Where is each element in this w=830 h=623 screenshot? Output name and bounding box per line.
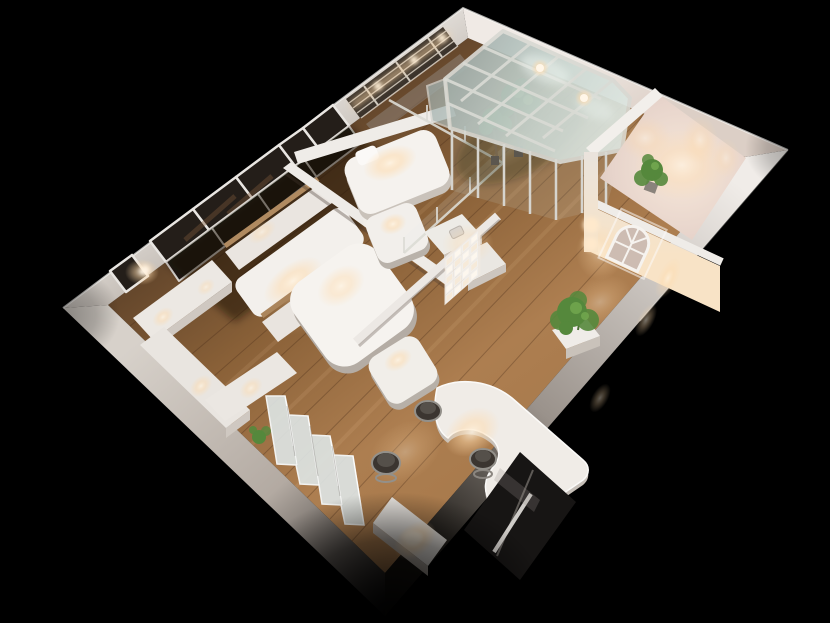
render-canvas: Night-time cutaway 3D render of a furnis… (0, 0, 830, 623)
wall-light (583, 217, 599, 233)
stool (415, 401, 441, 421)
wall-light (584, 237, 598, 251)
apartment-3d-render: Night-time cutaway 3D render of a furnis… (0, 0, 830, 623)
wall-sconce (140, 265, 150, 275)
